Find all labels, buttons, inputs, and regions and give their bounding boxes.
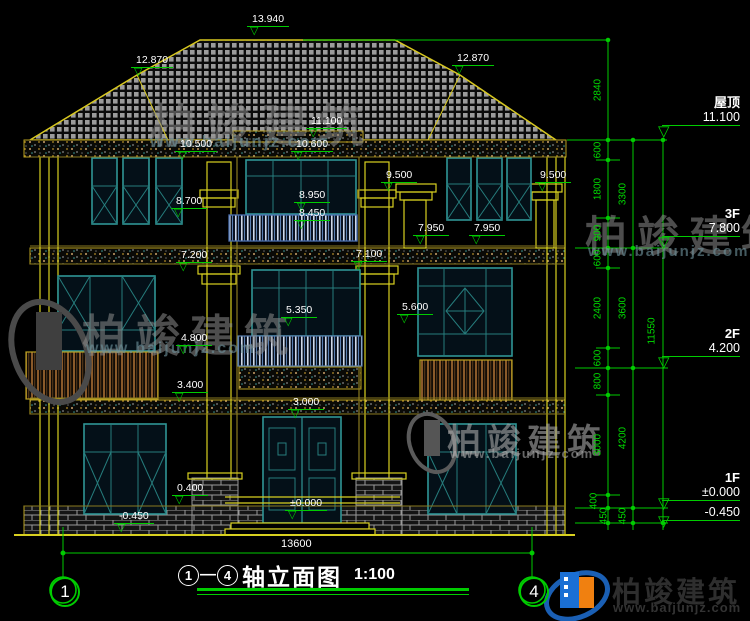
level-name: 1F — [662, 471, 740, 485]
watermark-url: www.baijunjz.com — [86, 340, 256, 358]
elevation-marker: 10.500▽ — [175, 139, 217, 160]
dim-value: 1800 — [593, 178, 604, 200]
elevation-marker: ±0.000▽ — [285, 498, 327, 519]
dim-value: 3600 — [618, 297, 629, 319]
dim-value: 3000 — [593, 434, 604, 456]
elevation-triangle-icon: ▽ — [416, 236, 424, 244]
elevation-triangle-icon: ▽ — [384, 183, 392, 191]
elevation-triangle-icon: ▽ — [179, 263, 187, 271]
cad-elevation-sheet: 柏竣建筑 www.baijunjz.com 柏竣建筑 www.baijunjz.… — [0, 0, 750, 621]
level-name: 屋顶 — [662, 96, 740, 110]
elevation-marker: 13.940▽ — [247, 14, 289, 35]
dim-value: 4200 — [618, 427, 629, 449]
elevation-triangle-icon: ▽ — [291, 410, 299, 418]
title-dash: — — [200, 566, 216, 584]
dim-value: 2840 — [593, 79, 604, 101]
brand-logo-icon — [539, 564, 615, 621]
title-text: 轴立面图 — [242, 558, 342, 592]
elevation-triangle-icon: ▽ — [400, 315, 408, 323]
elevation-marker: 10.600▽ — [291, 139, 333, 160]
dim-value: 600 — [593, 142, 604, 159]
dim-value: 900 — [593, 225, 604, 242]
elevation-marker: 7.200▽ — [176, 250, 212, 271]
level-value: 4.200 — [662, 341, 740, 357]
dim-value: 11550 — [647, 317, 658, 344]
level-value: 11.100 — [662, 110, 740, 126]
title-scale: 1:100 — [354, 566, 395, 584]
elevation-triangle-icon: ▽ — [178, 152, 186, 160]
elevation-marker: 11.100▽ — [306, 116, 347, 137]
dim-value: 600 — [593, 250, 604, 267]
title-axis-left: 1 — [178, 565, 199, 586]
elevation-marker: 0.400▽ — [172, 483, 208, 504]
third-floor-balcony-railing — [229, 215, 357, 241]
elevation-triangle-icon: ▽ — [472, 236, 480, 244]
dim-value: 800 — [593, 373, 604, 390]
elevation-marker: 9.500▽ — [381, 170, 417, 191]
level-marker-roof: 屋顶 11.100 — [662, 96, 740, 126]
elevation-marker: 5.350▽ — [281, 305, 317, 326]
level-triangle-icon: ▽ — [658, 238, 670, 248]
title-axis-right: 4 — [217, 565, 238, 586]
elevation-triangle-icon: ▽ — [455, 66, 463, 74]
elevation-triangle-icon: ▽ — [117, 524, 125, 532]
dim-value: 450 — [599, 508, 610, 525]
elevation-marker: -0.450▽ — [114, 511, 154, 532]
elevation-triangle-icon: ▽ — [250, 27, 258, 35]
elevation-marker: 7.100▽ — [351, 249, 387, 270]
elevation-triangle-icon: ▽ — [288, 511, 296, 519]
elevation-marker: 9.500▽ — [535, 170, 571, 191]
elevation-marker: 8.450▽ — [294, 208, 330, 229]
elevation-marker: 12.870▽ — [452, 53, 494, 74]
elevation-marker: 3.000▽ — [288, 397, 324, 418]
title-underline-thin — [197, 594, 469, 595]
elevation-marker: 4.800▽ — [176, 333, 212, 354]
drawing-title: 1 — 4 轴立面图 1:100 — [178, 558, 395, 592]
elevation-marker: 12.870▽ — [131, 55, 173, 76]
elevation-triangle-icon: ▽ — [354, 262, 362, 270]
watermark-url: www.baijunjz.com — [450, 446, 594, 461]
elevation-marker: 5.600▽ — [397, 302, 433, 323]
level-marker-2f: 2F 4.200 — [662, 327, 740, 357]
elevation-triangle-icon: ▽ — [174, 209, 182, 217]
elevation-triangle-icon: ▽ — [175, 496, 183, 504]
elevation-triangle-icon: ▽ — [179, 346, 187, 354]
level-marker-ground: -0.450 — [662, 505, 740, 521]
brand-url: www.baijunjz.com — [613, 600, 741, 615]
elevation-triangle-icon: ▽ — [284, 318, 292, 326]
elevation-triangle-icon: ▽ — [134, 68, 142, 76]
level-value: 7.800 — [662, 221, 740, 237]
elevation-triangle-icon: ▽ — [294, 152, 302, 160]
axis-bubble-4: 4 — [519, 577, 549, 607]
level-triangle-icon: ▽ — [658, 358, 670, 368]
level-value: -0.450 — [662, 505, 740, 521]
overall-width-dim: 13600 — [281, 538, 312, 550]
elevation-marker: 8.700▽ — [171, 196, 207, 217]
title-underline — [197, 588, 469, 591]
elevation-marker: 3.400▽ — [172, 380, 208, 401]
axis-bubble-1: 1 — [50, 577, 80, 607]
elevation-triangle-icon: ▽ — [175, 393, 183, 401]
elevation-marker: 7.950▽ — [469, 223, 505, 244]
elevation-triangle-icon: ▽ — [297, 221, 305, 229]
level-name: 3F — [662, 207, 740, 221]
elevation-triangle-icon: ▽ — [538, 183, 546, 191]
dim-value: 600 — [593, 350, 604, 367]
level-triangle-icon: ▽ — [658, 127, 670, 137]
level-marker-1f: 1F ±0.000 — [662, 471, 740, 501]
dim-value: 450 — [618, 508, 629, 525]
dim-value: 3300 — [618, 183, 629, 205]
level-name: 2F — [662, 327, 740, 341]
elevation-marker: 7.950▽ — [413, 223, 449, 244]
level-marker-3f: 3F 7.800 — [662, 207, 740, 237]
second-floor-right-railing — [420, 360, 512, 400]
level-value: ±0.000 — [662, 485, 740, 501]
elevation-triangle-icon: ▽ — [309, 129, 317, 137]
dim-value: 2400 — [593, 297, 604, 319]
